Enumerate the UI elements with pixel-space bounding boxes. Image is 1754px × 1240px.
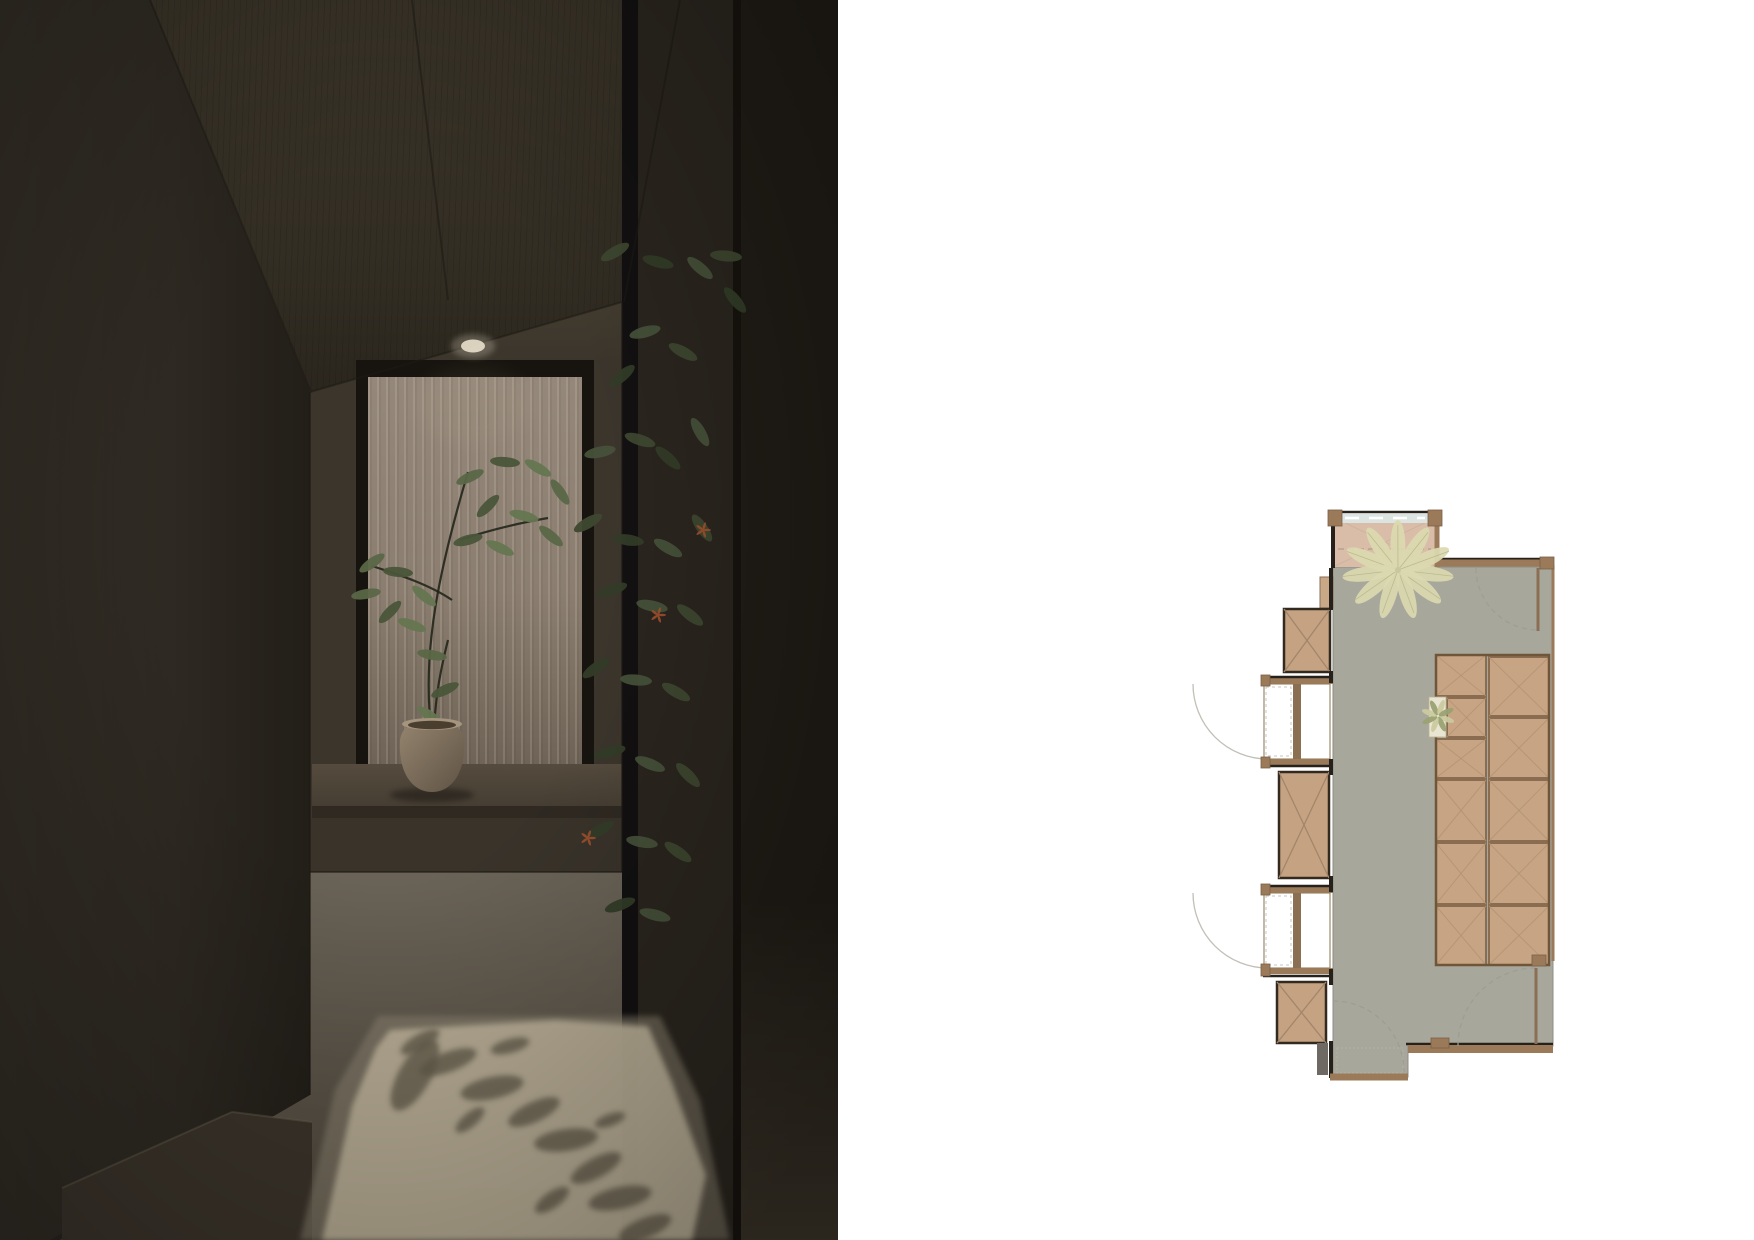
- shaft-blocks: [1277, 609, 1330, 1043]
- hallway-render: [0, 0, 838, 1240]
- vignette-shading: [0, 0, 838, 1240]
- presentation-canvas: [0, 0, 1754, 1240]
- floor-plan: [1185, 495, 1575, 1095]
- tatami-storage-grid: [1436, 655, 1549, 965]
